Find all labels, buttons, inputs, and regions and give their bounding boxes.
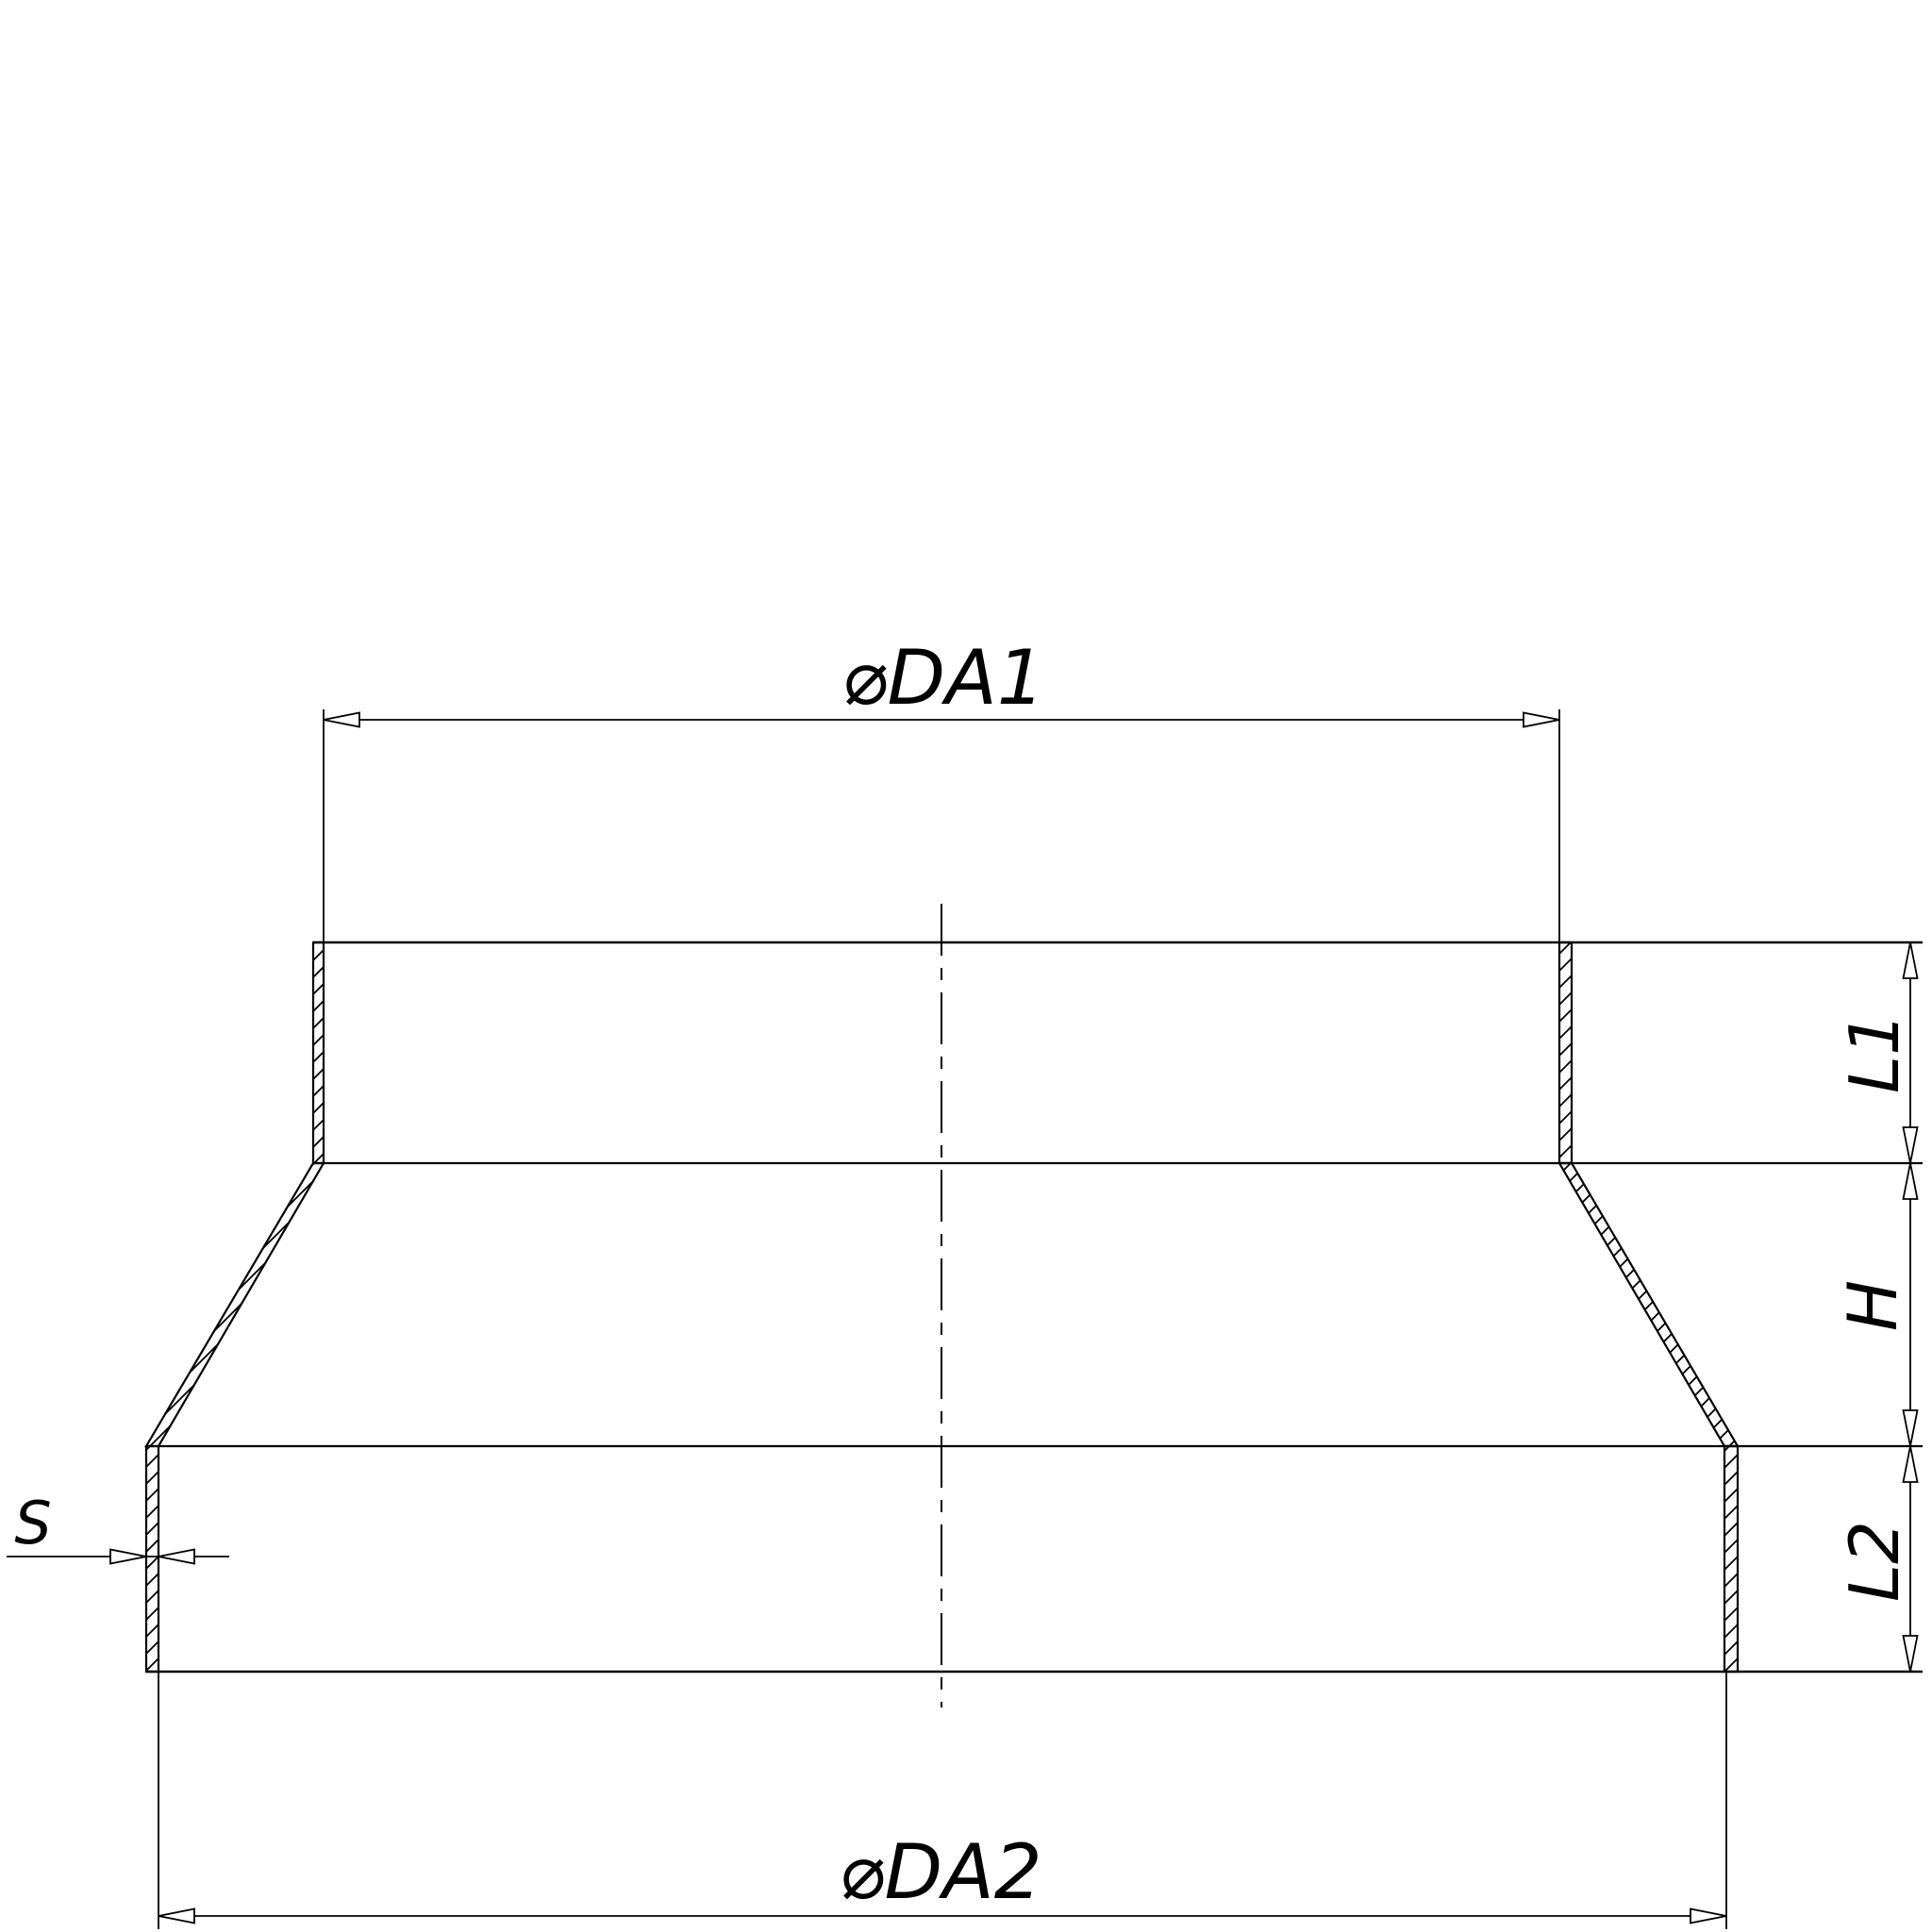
right-upper-wall — [1559, 942, 1572, 1163]
dimension-da2: ⌀DA2 — [158, 1672, 1726, 1929]
right-taper-wall — [1559, 1163, 1738, 1446]
arrowhead-right — [1690, 1909, 1726, 1924]
arrowhead-left — [324, 713, 359, 727]
arrowhead-right — [110, 1550, 146, 1564]
arrowhead-left — [158, 1909, 194, 1924]
arrowhead-up — [1904, 1163, 1918, 1199]
dimension-chain-right: L1 H L2 — [1833, 942, 1918, 1672]
h-label: H — [1833, 1280, 1912, 1331]
part-outline — [146, 942, 1923, 1672]
left-taper-wall — [146, 1163, 324, 1446]
arrowhead-up — [1904, 1446, 1918, 1482]
l2-label: L2 — [1835, 1521, 1914, 1602]
right-lower-wall — [1724, 1446, 1738, 1672]
da2-label: ⌀DA2 — [839, 1828, 1041, 1916]
reducer-cross-section-drawing: ⌀DA1 ⌀DA2 L1 H L2 S — [0, 0, 1932, 1932]
left-lower-wall — [146, 1446, 158, 1672]
arrowhead-right — [1524, 713, 1559, 727]
left-upper-wall — [313, 942, 324, 1163]
s-label: S — [14, 1489, 51, 1557]
arrowhead-down — [1904, 1127, 1918, 1163]
arrowhead-down — [1904, 1410, 1918, 1446]
l1-label: L1 — [1835, 1012, 1914, 1093]
dimension-da1: ⌀DA1 — [324, 634, 1559, 942]
arrowhead-up — [1904, 942, 1918, 978]
dimension-s: S — [7, 1489, 229, 1564]
arrowhead-down — [1904, 1636, 1918, 1672]
technical-drawing-page: ⌀DA1 ⌀DA2 L1 H L2 S — [0, 0, 1932, 1932]
arrowhead-left — [158, 1550, 194, 1564]
da1-label: ⌀DA1 — [841, 634, 1044, 722]
